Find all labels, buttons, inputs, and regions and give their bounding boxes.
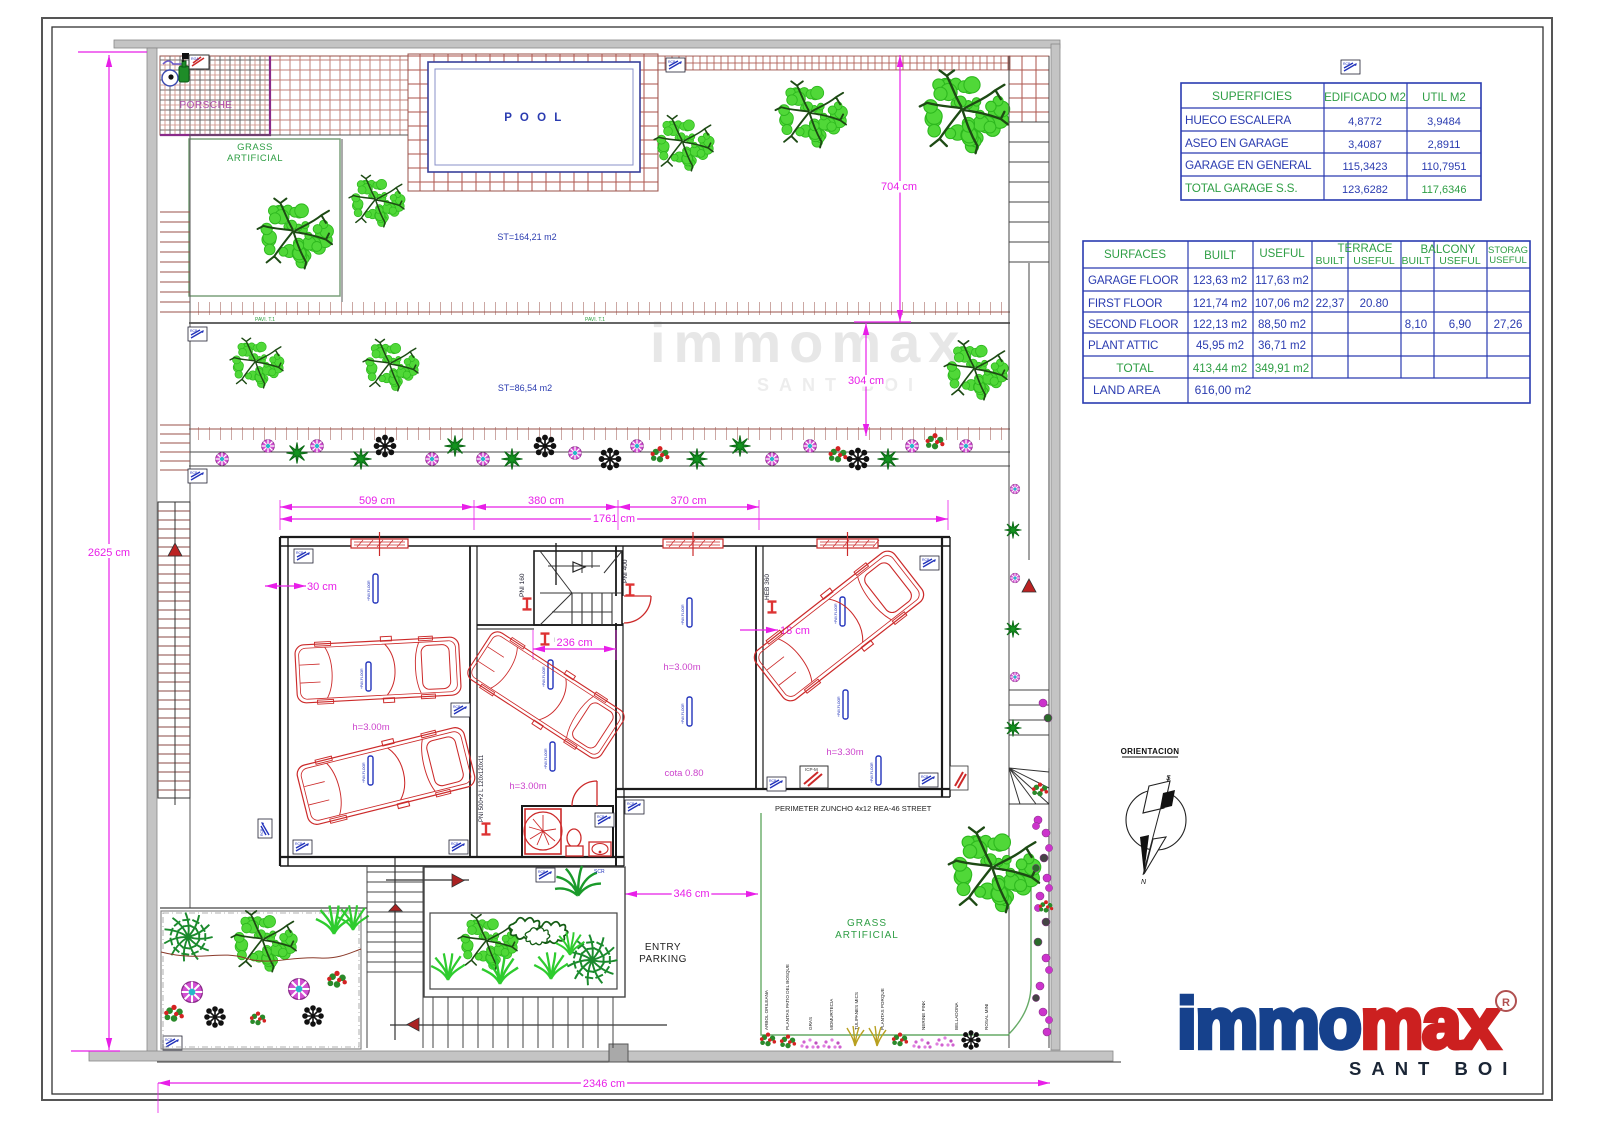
svg-text:616,00 m2: 616,00 m2	[1195, 383, 1252, 397]
svg-text:SANT BOI: SANT BOI	[757, 375, 923, 395]
svg-text:304 cm: 304 cm	[848, 375, 884, 387]
svg-text:349,91 m2: 349,91 m2	[1255, 363, 1309, 375]
svg-text:+PAV.FLOOR: +PAV.FLOOR	[362, 762, 366, 783]
svg-text:4,8772: 4,8772	[1348, 116, 1382, 128]
svg-text:UTIL M2: UTIL M2	[1422, 92, 1466, 104]
svg-text:GRAS: GRAS	[808, 1017, 813, 1030]
svg-text:PAVI. T.1: PAVI. T.1	[585, 317, 605, 323]
svg-text:P O O L: P O O L	[504, 112, 563, 124]
svg-text:ROSAL MINI: ROSAL MINI	[984, 1004, 989, 1030]
svg-text:+PAV.FLOOR: +PAV.FLOOR	[837, 696, 841, 717]
svg-text:122,13 m2: 122,13 m2	[1193, 319, 1247, 331]
svg-text:BELLADONA: BELLADONA	[954, 1001, 959, 1030]
svg-text:3,9484: 3,9484	[1427, 116, 1461, 128]
svg-text:20.80: 20.80	[1360, 298, 1389, 310]
svg-text:TERRACE: TERRACE	[1338, 243, 1393, 255]
svg-text:2625 cm: 2625 cm	[88, 547, 130, 559]
svg-text:TULIPANES MICS: TULIPANES MICS	[854, 992, 859, 1030]
svg-text:NERINE PINK: NERINE PINK	[921, 1000, 926, 1030]
svg-text:BUILT: BUILT	[1204, 250, 1236, 262]
svg-text:PERIMETER ZUNCHO 4x12 REA-46 S: PERIMETER ZUNCHO 4x12 REA-46 STREET	[775, 804, 932, 813]
svg-text:SANT BOI: SANT BOI	[1349, 1058, 1517, 1079]
svg-text:GARAGE EN GENERAL: GARAGE EN GENERAL	[1185, 158, 1312, 172]
svg-text:cota 0.80: cota 0.80	[664, 768, 703, 779]
svg-text:ORIENTACION: ORIENTACION	[1121, 747, 1180, 756]
svg-text:ST=164,21 m2: ST=164,21 m2	[497, 232, 556, 242]
svg-text:HUECO ESCALERA: HUECO ESCALERA	[1185, 113, 1291, 127]
svg-text:346 cm: 346 cm	[673, 888, 709, 900]
svg-text:ARBOL ORILEANA: ARBOL ORILEANA	[764, 989, 769, 1030]
svg-text:h=3.30m: h=3.30m	[826, 747, 863, 758]
svg-text:ST=86,54 m2: ST=86,54 m2	[498, 383, 552, 393]
svg-text:SUPERFICIES: SUPERFICIES	[1212, 89, 1292, 103]
svg-text:R: R	[1502, 997, 1510, 1009]
svg-text:8,10: 8,10	[1405, 319, 1427, 331]
svg-text:immomax: immomax	[650, 311, 967, 374]
svg-text:107,06 m2: 107,06 m2	[1255, 298, 1309, 310]
svg-text:121,74 m2: 121,74 m2	[1193, 298, 1247, 310]
svg-text:SCR: SCR	[594, 869, 605, 875]
svg-text:110,7951: 110,7951	[1421, 161, 1466, 173]
svg-text:PNI 400: PNI 400	[622, 559, 629, 583]
svg-text:36,71 m2: 36,71 m2	[1258, 340, 1306, 352]
svg-text:+PAV.FLOOR: +PAV.FLOOR	[834, 603, 838, 624]
svg-text:LAND AREA: LAND AREA	[1093, 383, 1160, 397]
svg-text:PLANT ATTIC: PLANT ATTIC	[1088, 339, 1158, 352]
svg-text:USEFUL: USEFUL	[1489, 255, 1526, 266]
svg-text:h=3.00m: h=3.00m	[663, 662, 700, 673]
svg-text:2346 cm: 2346 cm	[583, 1078, 625, 1090]
svg-text:+PAV.FLOOR: +PAV.FLOOR	[681, 604, 685, 625]
svg-text:PARKING: PARKING	[639, 954, 687, 965]
svg-text:117,63 m2: 117,63 m2	[1255, 275, 1309, 287]
svg-text:HEB 360: HEB 360	[764, 574, 771, 600]
svg-text:PORSCHE: PORSCHE	[180, 100, 233, 111]
svg-text:ARTIFICIAL: ARTIFICIAL	[835, 930, 899, 941]
svg-text:GRASS: GRASS	[847, 918, 887, 929]
svg-text:ARTIFICIAL: ARTIFICIAL	[227, 153, 283, 164]
svg-text:ICP-M: ICP-M	[805, 767, 818, 772]
svg-text:123,6282: 123,6282	[1342, 184, 1388, 196]
svg-text:RGA: RGA	[191, 57, 199, 61]
svg-text:123,63 m2: 123,63 m2	[1193, 275, 1247, 287]
svg-text:USEFUL: USEFUL	[1259, 248, 1305, 260]
svg-text:GARAGE FLOOR: GARAGE FLOOR	[1088, 274, 1178, 287]
svg-text:TOTAL GARAGE S.S.: TOTAL GARAGE S.S.	[1185, 181, 1297, 195]
svg-text:PLANTAS PATIO DEL BOSQUE: PLANTAS PATIO DEL BOSQUE	[785, 964, 790, 1030]
svg-text:h=3.00m: h=3.00m	[509, 781, 546, 792]
svg-text:+PAV.FLOOR: +PAV.FLOOR	[367, 580, 371, 601]
svg-text:S: S	[1166, 775, 1171, 782]
svg-text:45,95 m2: 45,95 m2	[1196, 340, 1244, 352]
svg-text:18 cm: 18 cm	[780, 625, 810, 637]
svg-text:ASEO EN GARAGE: ASEO EN GARAGE	[1185, 136, 1289, 150]
svg-text:TOTAL: TOTAL	[1116, 361, 1154, 375]
svg-text:27,26: 27,26	[1494, 319, 1523, 331]
svg-text:3,4087: 3,4087	[1348, 139, 1382, 151]
svg-text:PLANTAS PORQUE: PLANTAS PORQUE	[880, 988, 885, 1030]
svg-text:ENTRY: ENTRY	[645, 942, 681, 953]
svg-text:22,37: 22,37	[1316, 298, 1345, 310]
svg-text:+PAV.FLOOR: +PAV.FLOOR	[870, 762, 874, 783]
svg-text:FIRST FLOOR: FIRST FLOOR	[1088, 297, 1162, 310]
svg-text:SECOND FLOOR: SECOND FLOOR	[1088, 318, 1178, 331]
svg-text:MOMURTECIA: MOMURTECIA	[829, 998, 834, 1030]
svg-text:380 cm: 380 cm	[528, 495, 564, 507]
svg-text:115,3423: 115,3423	[1342, 161, 1387, 173]
svg-text:+PAV.FLOOR: +PAV.FLOOR	[544, 748, 548, 769]
svg-text:BUILT: BUILT	[1402, 255, 1432, 267]
svg-text:SURFACES: SURFACES	[1104, 249, 1166, 261]
svg-text:236 cm: 236 cm	[556, 637, 592, 649]
svg-text:370 cm: 370 cm	[670, 495, 706, 507]
svg-text:704 cm: 704 cm	[881, 181, 917, 193]
svg-text:PNI 500+2 L 120x120x11: PNI 500+2 L 120x120x11	[479, 754, 485, 822]
svg-text:+PAV.FLOOR: +PAV.FLOOR	[542, 666, 546, 687]
svg-text:6,90: 6,90	[1449, 319, 1471, 331]
svg-text:+PAV.FLOOR: +PAV.FLOOR	[681, 703, 685, 724]
svg-text:+PAV.FLOOR: +PAV.FLOOR	[360, 668, 364, 689]
svg-text:413,44 m2: 413,44 m2	[1193, 363, 1247, 375]
svg-text:PNI 160: PNI 160	[519, 573, 526, 597]
svg-text:BUILT: BUILT	[1316, 255, 1346, 267]
svg-text:1761 cm: 1761 cm	[593, 513, 635, 525]
svg-text:h=3.00m: h=3.00m	[352, 722, 389, 733]
svg-text:PAVI. T.1: PAVI. T.1	[255, 317, 275, 323]
svg-text:N: N	[1141, 879, 1147, 886]
svg-text:immomax: immomax	[1177, 985, 1499, 1064]
svg-text:509 cm: 509 cm	[359, 495, 395, 507]
svg-text:117,6346: 117,6346	[1421, 184, 1466, 196]
svg-text:88,50 m2: 88,50 m2	[1258, 319, 1306, 331]
svg-text:30 cm: 30 cm	[307, 581, 337, 593]
svg-text:GRASS: GRASS	[237, 142, 273, 153]
svg-text:USEFUL: USEFUL	[1439, 255, 1481, 267]
svg-text:2,8911: 2,8911	[1428, 139, 1461, 151]
svg-text:USEFUL: USEFUL	[1353, 255, 1395, 267]
svg-text:EDIFICADO M2: EDIFICADO M2	[1324, 92, 1406, 104]
